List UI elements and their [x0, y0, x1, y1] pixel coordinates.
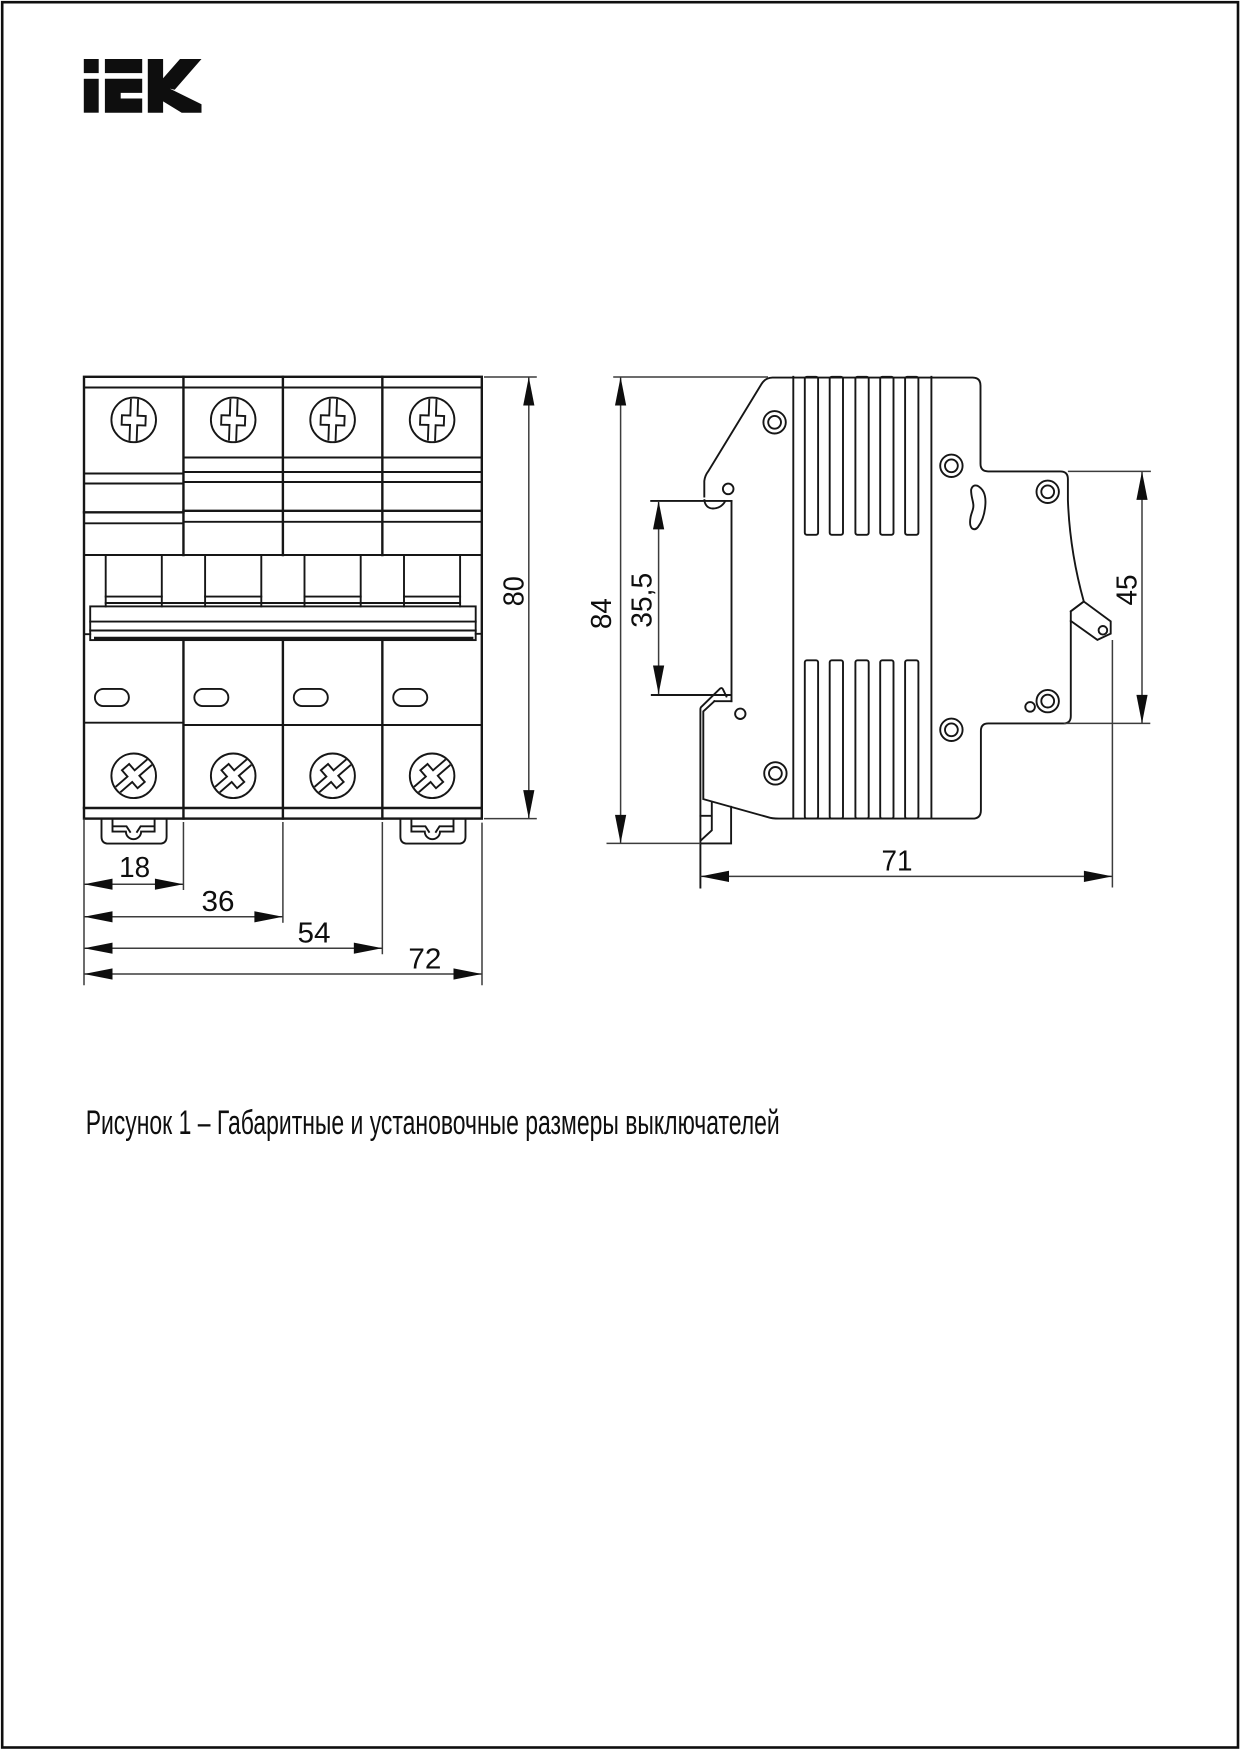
svg-text:54: 54 [298, 917, 331, 949]
svg-text:Рисунок 1 – Габаритные и устан: Рисунок 1 – Габаритные и установочные ра… [86, 1104, 780, 1142]
svg-text:36: 36 [202, 886, 235, 918]
svg-text:72: 72 [408, 944, 441, 976]
svg-text:18: 18 [119, 852, 150, 884]
svg-text:84: 84 [586, 598, 618, 629]
svg-text:45: 45 [1111, 575, 1143, 606]
svg-text:80: 80 [498, 576, 530, 606]
svg-text:71: 71 [882, 845, 913, 877]
svg-text:35,5: 35,5 [626, 573, 658, 628]
